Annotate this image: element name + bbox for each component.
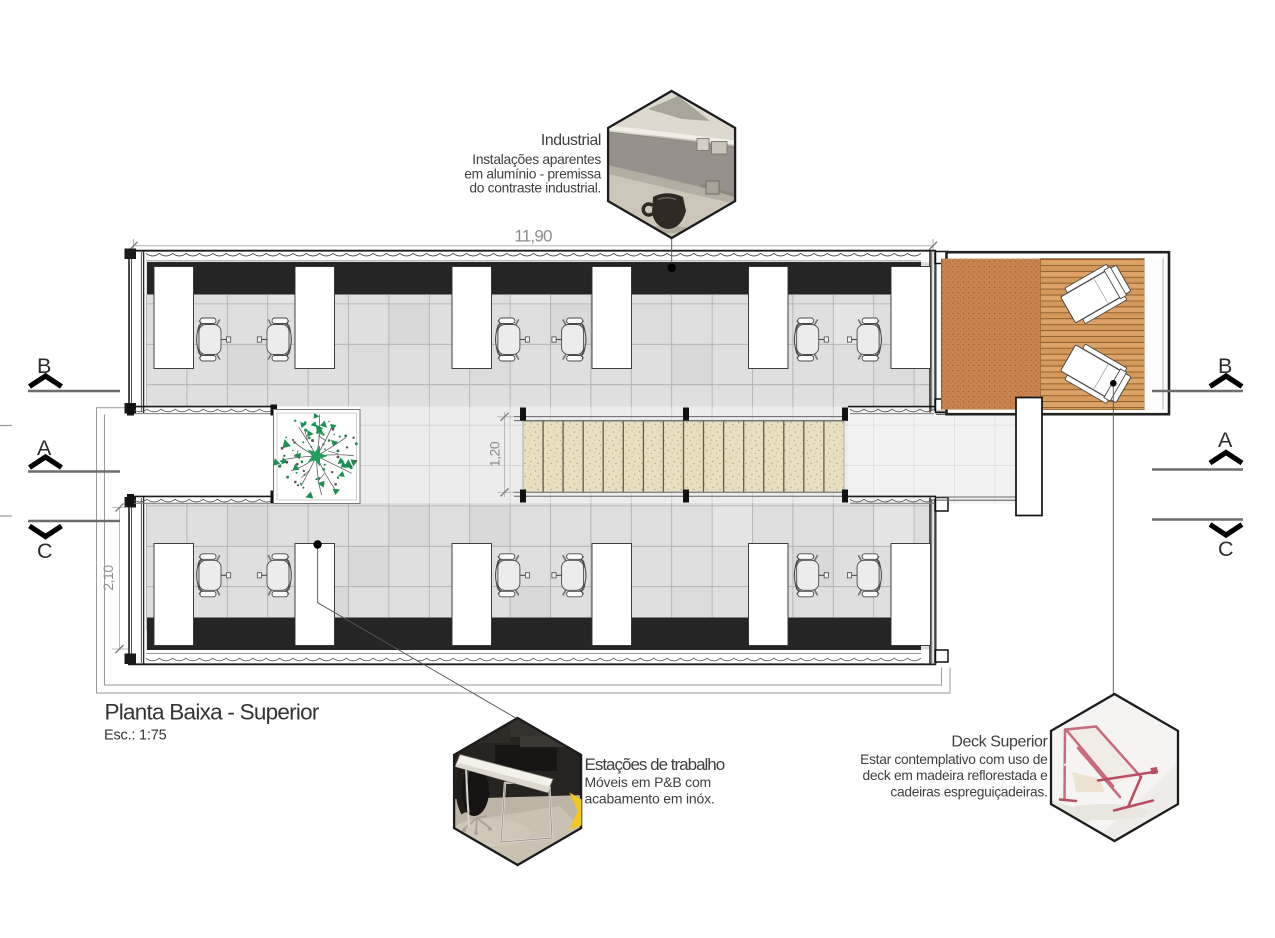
svg-text:Industrial: Industrial xyxy=(541,132,601,149)
svg-text:1,20: 1,20 xyxy=(487,441,503,467)
svg-text:cadeiras espreguiçadeiras.: cadeiras espreguiçadeiras. xyxy=(890,784,1047,799)
svg-text:em alumínio - premissa: em alumínio - premissa xyxy=(464,166,601,181)
svg-text:acabamento em inóx.: acabamento em inóx. xyxy=(585,790,715,806)
svg-text:Esc.: 1:75: Esc.: 1:75 xyxy=(104,728,167,744)
svg-text:Estar contemplativo com uso de: Estar contemplativo com uso de xyxy=(860,752,1048,767)
svg-text:A: A xyxy=(1218,428,1233,452)
svg-text:deck em madeira reflorestada e: deck em madeira reflorestada e xyxy=(862,768,1048,783)
svg-text:2,10: 2,10 xyxy=(100,565,116,591)
svg-text:C: C xyxy=(1218,537,1234,561)
svg-text:Deck Superior: Deck Superior xyxy=(951,734,1048,751)
svg-text:Móveis em P&B com: Móveis em P&B com xyxy=(585,774,712,790)
svg-text:Instalações aparentes: Instalações aparentes xyxy=(472,152,601,167)
svg-text:11,90: 11,90 xyxy=(514,227,552,246)
svg-text:Estações de trabalho: Estações de trabalho xyxy=(585,755,725,774)
svg-text:do contraste industrial.: do contraste industrial. xyxy=(469,181,601,196)
svg-text:Planta Baixa - Superior: Planta Baixa - Superior xyxy=(105,700,320,725)
svg-text:C: C xyxy=(37,539,53,563)
